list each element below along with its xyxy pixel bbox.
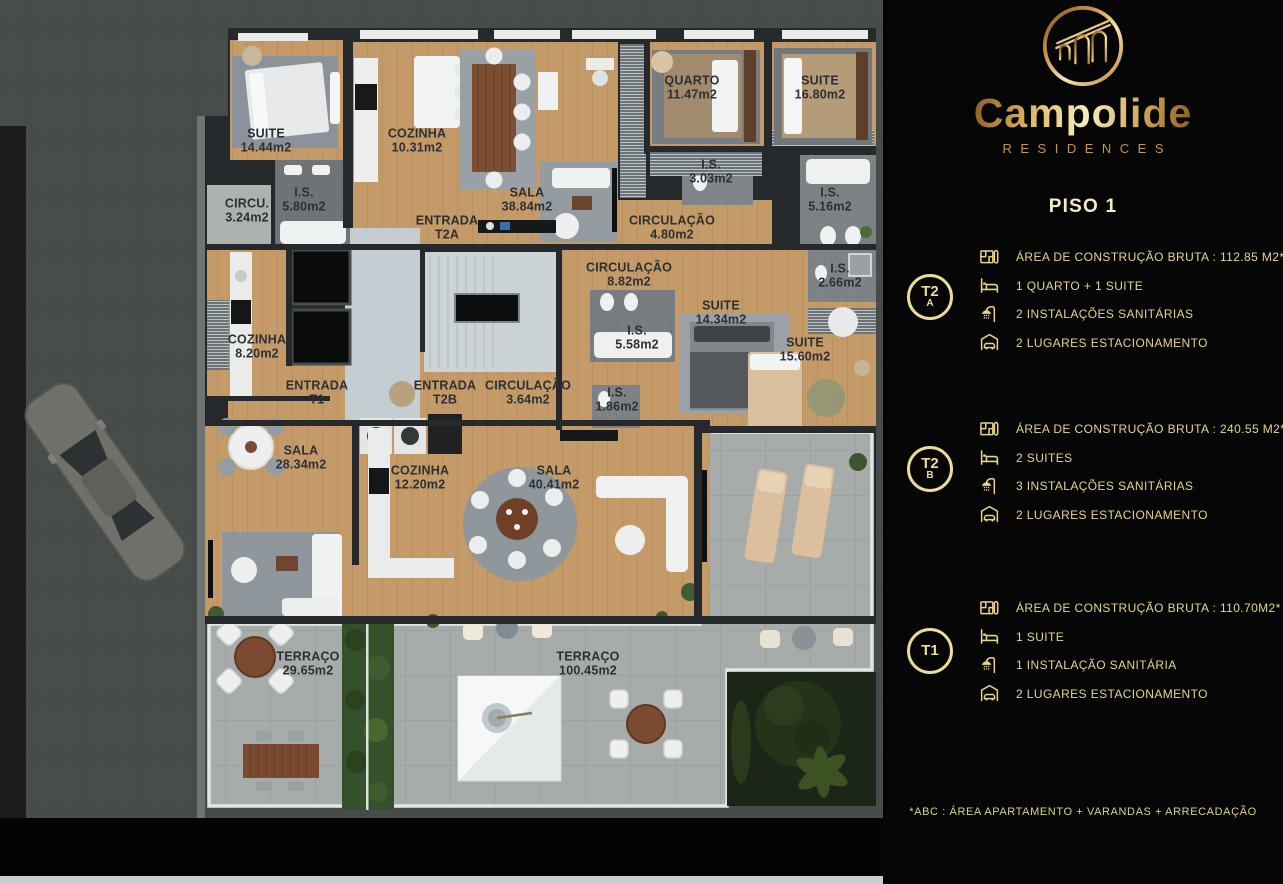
floorplan-icon	[979, 598, 1000, 619]
spec-row: 2 LUGARES ESTACIONAMENTO	[979, 680, 1281, 709]
unit-badge-t2a: T2 A	[907, 274, 953, 320]
brand-block: Campolide RESIDENCES	[883, 4, 1283, 156]
spec-row: 2 LUGARES ESTACIONAMENTO	[979, 329, 1283, 358]
garage-icon	[979, 504, 1000, 525]
spec-row: ÁREA DE CONSTRUÇÃO BRUTA : 240.55 M2*	[979, 415, 1283, 444]
spec-row: 1 INSTALAÇÃO SANITÁRIA	[979, 651, 1281, 680]
page-title: PISO 1	[883, 196, 1283, 218]
spec-row: 1 QUARTO + 1 SUITE	[979, 272, 1283, 301]
brand-name: Campolide	[974, 90, 1193, 137]
garage-icon	[979, 332, 1000, 353]
bed-icon	[979, 626, 1000, 647]
garden	[727, 672, 876, 806]
floorplan-icon	[979, 419, 1000, 440]
spec-row: 2 LUGARES ESTACIONAMENTO	[979, 501, 1283, 530]
spec-row: 3 INSTALAÇÕES SANITÁRIAS	[979, 472, 1283, 501]
shower-icon	[979, 655, 1000, 676]
pergola	[458, 676, 561, 781]
campolide-logo-icon	[1041, 4, 1125, 88]
bed-icon	[979, 447, 1000, 468]
brand-tagline: RESIDENCES	[994, 141, 1172, 156]
spec-row: 2 INSTALAÇÕES SANITÁRIAS	[979, 300, 1283, 329]
spec-row: 1 SUITE	[979, 623, 1281, 652]
unit-badge-t1: T1	[907, 628, 953, 674]
floorplan-render	[0, 0, 883, 884]
floorplan-scene: SUITE14.44m2COZINHA10.31m2SALA38.84m2QUA…	[0, 0, 883, 884]
floorplan-icon	[979, 247, 1000, 268]
hedge	[342, 616, 394, 810]
info-panel: Campolide RESIDENCES PISO 1 T2 A ÁREA DE…	[883, 0, 1283, 884]
spec-row: ÁREA DE CONSTRUÇÃO BRUTA : 112.85 M2*	[979, 243, 1283, 272]
spec-row: ÁREA DE CONSTRUÇÃO BRUTA : 110.70M2*	[979, 594, 1281, 623]
shower-icon	[979, 304, 1000, 325]
garage-icon	[979, 683, 1000, 704]
spec-row: 2 SUITES	[979, 444, 1283, 473]
footnote: *ABC : ÁREA APARTAMENTO + VARANDAS + ARR…	[883, 806, 1283, 818]
bed-icon	[979, 275, 1000, 296]
shower-icon	[979, 476, 1000, 497]
unit-badge-t2b: T2 B	[907, 446, 953, 492]
